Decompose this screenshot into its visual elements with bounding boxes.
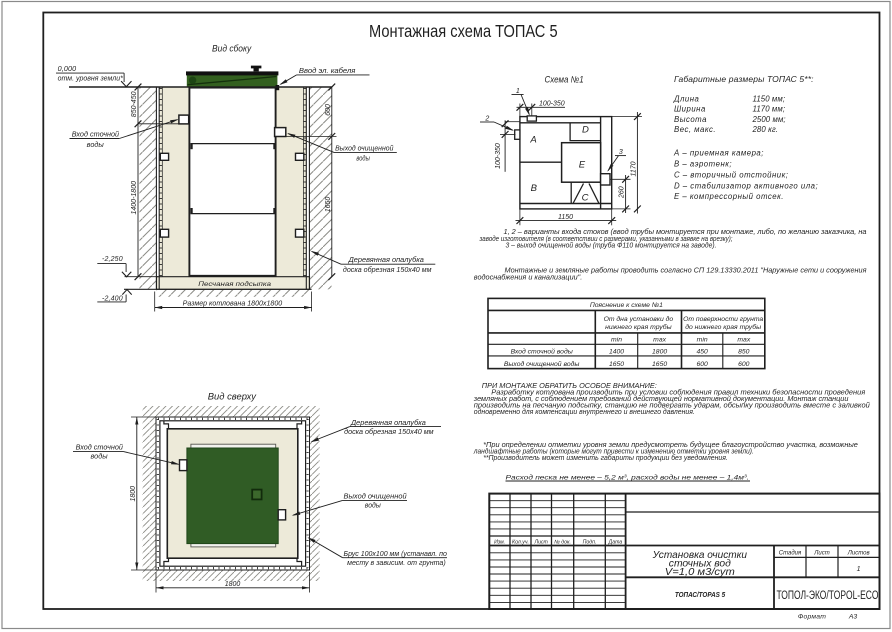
svg-text:450: 450 [696, 349, 708, 356]
svg-text:260: 260 [619, 186, 626, 199]
svg-text:От дна установки до: От дна установки до [604, 315, 674, 323]
svg-text:2500 мм;: 2500 мм; [752, 115, 786, 124]
svg-text:1800: 1800 [225, 581, 241, 588]
svg-text:1150: 1150 [558, 214, 573, 221]
svg-text:1170 мм;: 1170 мм; [753, 105, 786, 114]
svg-text:Вид сбоку: Вид сбоку [212, 44, 252, 54]
svg-text:min: min [611, 336, 622, 343]
svg-text:0,000: 0,000 [58, 64, 77, 73]
svg-text:№ док.: № док. [554, 539, 571, 545]
svg-text:доска обрезная 150х40 мм: доска обрезная 150х40 мм [343, 266, 432, 274]
svg-text:Выход очищенной воды: Выход очищенной воды [504, 360, 580, 368]
svg-text:Вид сверху: Вид сверху [208, 391, 257, 401]
svg-text:отм. уровня земли*: отм. уровня земли* [58, 76, 124, 83]
svg-text:В – аэротенк;: В – аэротенк; [674, 159, 732, 168]
svg-text:водоснабжения и канализации".: водоснабжения и канализации". [474, 273, 583, 281]
svg-text:Листов: Листов [847, 551, 870, 557]
svg-text:Монтажная схема ТОПАС 5: Монтажная схема ТОПАС 5 [369, 21, 558, 41]
svg-text:От поверхности грунта: От поверхности грунта [683, 316, 763, 323]
svg-text:1170: 1170 [630, 161, 637, 176]
svg-text:Вес, макс.: Вес, макс. [674, 125, 716, 134]
svg-text:до нижнего края трубы: до нижнего края трубы [685, 323, 761, 331]
svg-text:V=1,0 м3/сут: V=1,0 м3/сут [665, 567, 735, 578]
svg-text:D – стабилизатор активного ила: D – стабилизатор активного ила; [674, 181, 818, 190]
svg-text:Лист: Лист [534, 539, 549, 545]
svg-text:100-350: 100-350 [539, 101, 565, 108]
svg-text:воды: воды [365, 502, 382, 510]
svg-text:Вход сточной воды: Вход сточной воды [511, 348, 573, 356]
svg-text:ТОПАС/TOPAS 5: ТОПАС/TOPAS 5 [675, 590, 726, 599]
svg-text:воды: воды [91, 453, 109, 461]
svg-text:2: 2 [484, 115, 489, 122]
svg-text:Высота: Высота [674, 115, 707, 124]
svg-text:Расход песка не менее – 5,2 м³: Расход песка не менее – 5,2 м³, расход в… [506, 473, 750, 481]
svg-text:Пояснение к схеме №1: Пояснение к схеме №1 [590, 302, 663, 309]
svg-text:С – вторичный отстойник;: С – вторичный отстойник; [674, 170, 788, 179]
svg-text:Выход очищенной: Выход очищенной [335, 145, 393, 153]
svg-text:Изм.: Изм. [494, 539, 505, 545]
svg-text:А: А [529, 135, 536, 146]
svg-text:доска обрезная 150х40 мм: доска обрезная 150х40 мм [344, 428, 434, 436]
svg-text:Е: Е [579, 159, 586, 170]
svg-text:Ширина: Ширина [674, 105, 706, 114]
svg-text:3: 3 [619, 149, 623, 156]
svg-text:600: 600 [696, 361, 708, 368]
svg-text:Габаритные размеры ТОПАС 5**:: Габаритные размеры ТОПАС 5**: [674, 74, 814, 84]
svg-text:Ввод эл. кабеля: Ввод эл. кабеля [299, 67, 356, 75]
svg-text:3 – выход очищенной воды (труб: 3 – выход очищенной воды (труба Ф110 мон… [506, 242, 717, 250]
svg-text:-2,400: -2,400 [102, 295, 123, 302]
svg-text:850: 850 [738, 349, 750, 356]
svg-text:Формат: Формат [798, 613, 826, 620]
svg-text:воды: воды [356, 155, 370, 163]
svg-text:С: С [582, 192, 589, 203]
svg-text:max: max [653, 336, 666, 343]
svg-text:Кол.уч.: Кол.уч. [512, 539, 529, 545]
svg-text:Песчаная подсыпка: Песчаная подсыпка [198, 280, 271, 288]
svg-text:Деревянная опалубка: Деревянная опалубка [350, 419, 426, 427]
svg-text:Е – компрессорный отсек.: Е – компрессорный отсек. [674, 192, 784, 201]
svg-text:Размер котлована 1800х1800: Размер котлована 1800х1800 [183, 301, 283, 308]
svg-text:D: D [582, 125, 589, 136]
svg-text:1800: 1800 [130, 486, 137, 502]
svg-text:Дата: Дата [608, 539, 623, 545]
svg-text:Выход очищенной: Выход очищенной [344, 493, 407, 501]
svg-text:Брус 100х100 мм (устанавл. по: Брус 100х100 мм (устанавл. по [344, 551, 448, 558]
svg-text:1800: 1800 [652, 349, 667, 356]
svg-text:-2,250: -2,250 [102, 256, 123, 263]
svg-text:1: 1 [857, 566, 861, 573]
svg-text:1650: 1650 [609, 361, 624, 368]
svg-text:100-350: 100-350 [495, 143, 502, 169]
svg-text:600: 600 [325, 104, 332, 116]
svg-text:нижнего края трубы: нижнего края трубы [605, 323, 671, 331]
svg-text:месту в зависим. от грунта): месту в зависим. от грунта) [347, 560, 446, 567]
svg-text:А3: А3 [848, 613, 858, 620]
svg-text:600: 600 [738, 361, 750, 368]
svg-text:280 кг.: 280 кг. [752, 125, 779, 134]
svg-text:одновременно для компенсации в: одновременно для компенсации внутреннего… [474, 408, 695, 416]
svg-text:**Производитель может изменить: **Производитель может изменить габариты … [483, 454, 728, 462]
svg-text:1650: 1650 [325, 197, 332, 213]
svg-text:1650: 1650 [652, 361, 667, 368]
svg-text:max: max [737, 336, 750, 343]
svg-text:Вход сточной: Вход сточной [76, 443, 123, 451]
svg-text:А – приемная камера;: А – приемная камера; [673, 149, 764, 158]
svg-text:Подп.: Подп. [583, 539, 597, 545]
svg-text:Длина: Длина [673, 95, 700, 104]
svg-text:Схема №1: Схема №1 [545, 74, 584, 84]
svg-text:1400: 1400 [609, 349, 624, 356]
svg-text:Деревянная опалубка: Деревянная опалубка [348, 256, 424, 264]
svg-text:В: В [531, 183, 538, 194]
svg-text:ТОПОЛ-ЭКО/TOPOL-ECO: ТОПОЛ-ЭКО/TOPOL-ECO [777, 590, 879, 602]
svg-text:Стадия: Стадия [779, 551, 802, 557]
svg-text:Лист: Лист [813, 551, 829, 557]
svg-text:min: min [697, 336, 708, 343]
svg-text:воды: воды [87, 141, 105, 149]
svg-text:Вход сточной: Вход сточной [72, 130, 119, 138]
svg-text:1400-1800: 1400-1800 [131, 181, 138, 215]
svg-text:1150 мм;: 1150 мм; [753, 95, 786, 104]
svg-text:850-450: 850-450 [131, 91, 138, 117]
